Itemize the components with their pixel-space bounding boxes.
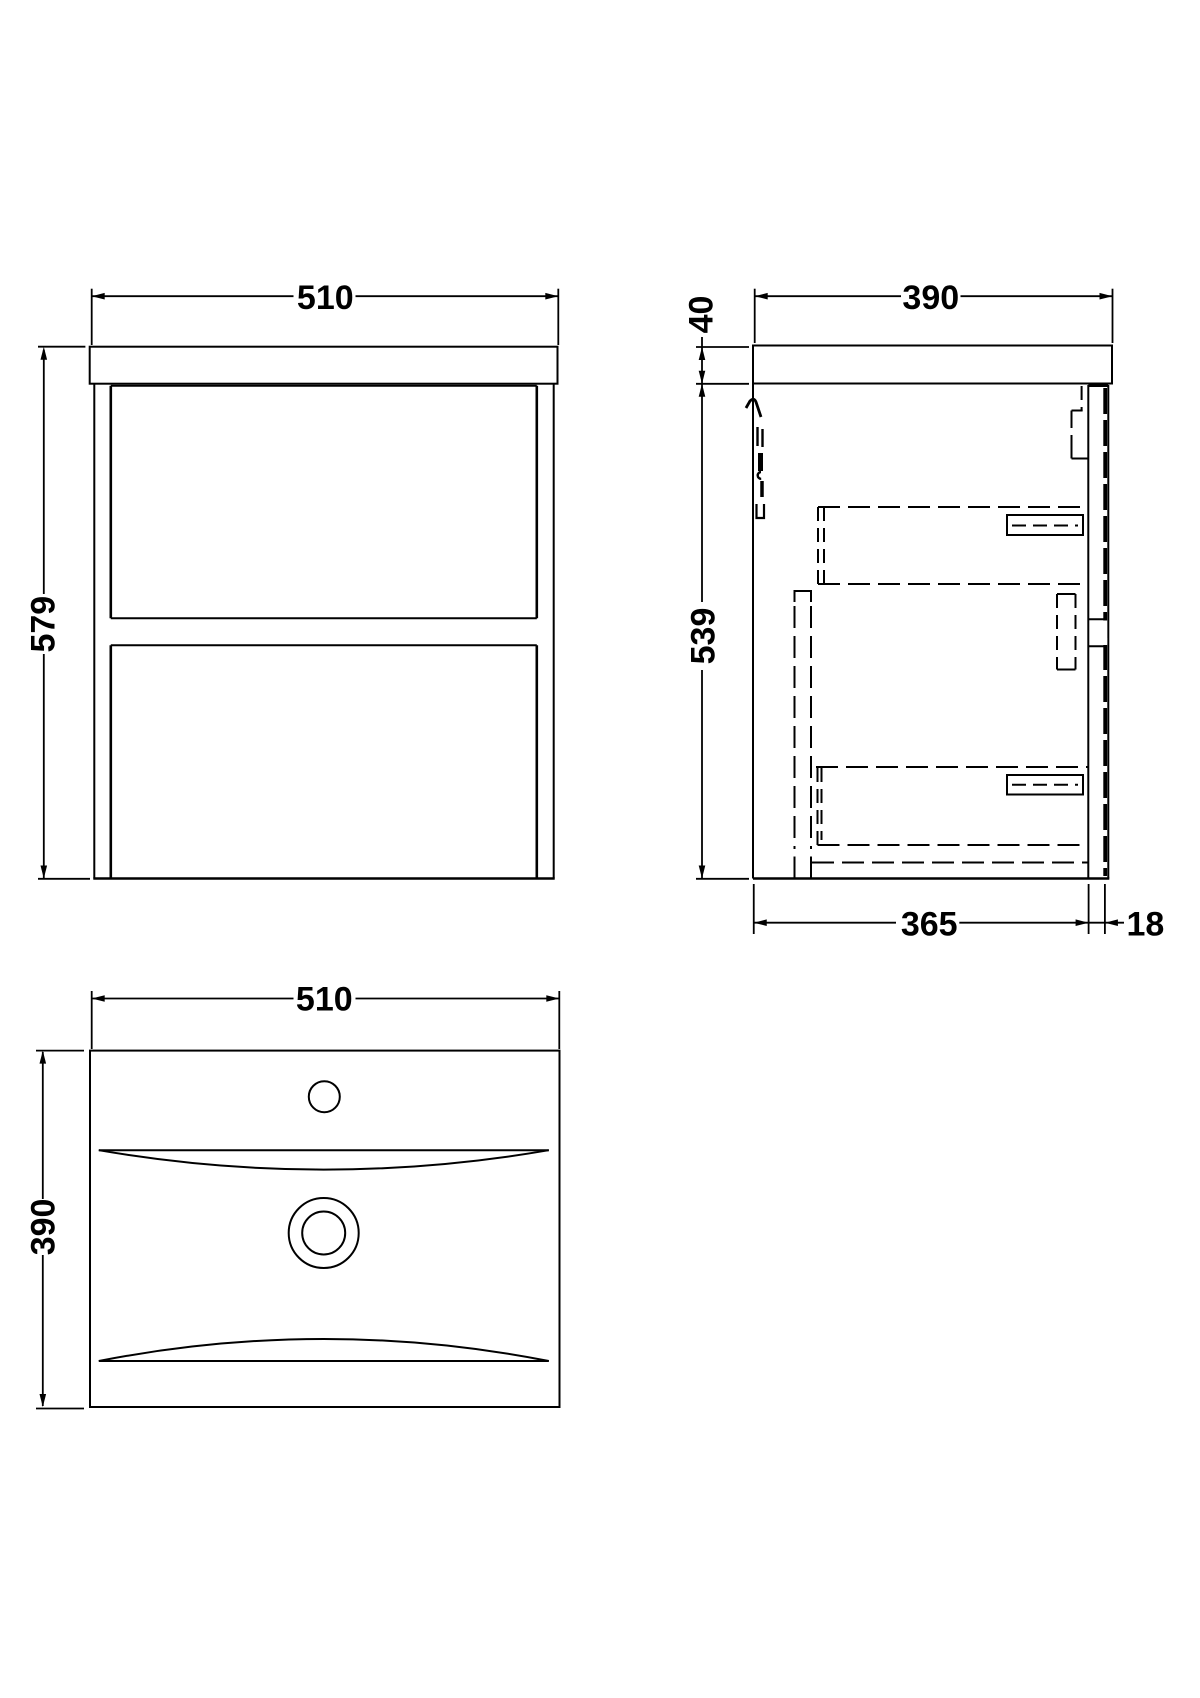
svg-text:365: 365 (901, 905, 958, 943)
svg-text:390: 390 (25, 1199, 63, 1256)
svg-text:390: 390 (902, 279, 959, 317)
svg-text:539: 539 (685, 608, 723, 665)
svg-text:579: 579 (25, 596, 63, 653)
svg-text:18: 18 (1126, 905, 1164, 943)
svg-text:40: 40 (683, 296, 721, 334)
svg-text:510: 510 (297, 279, 354, 317)
svg-text:510: 510 (296, 980, 353, 1018)
